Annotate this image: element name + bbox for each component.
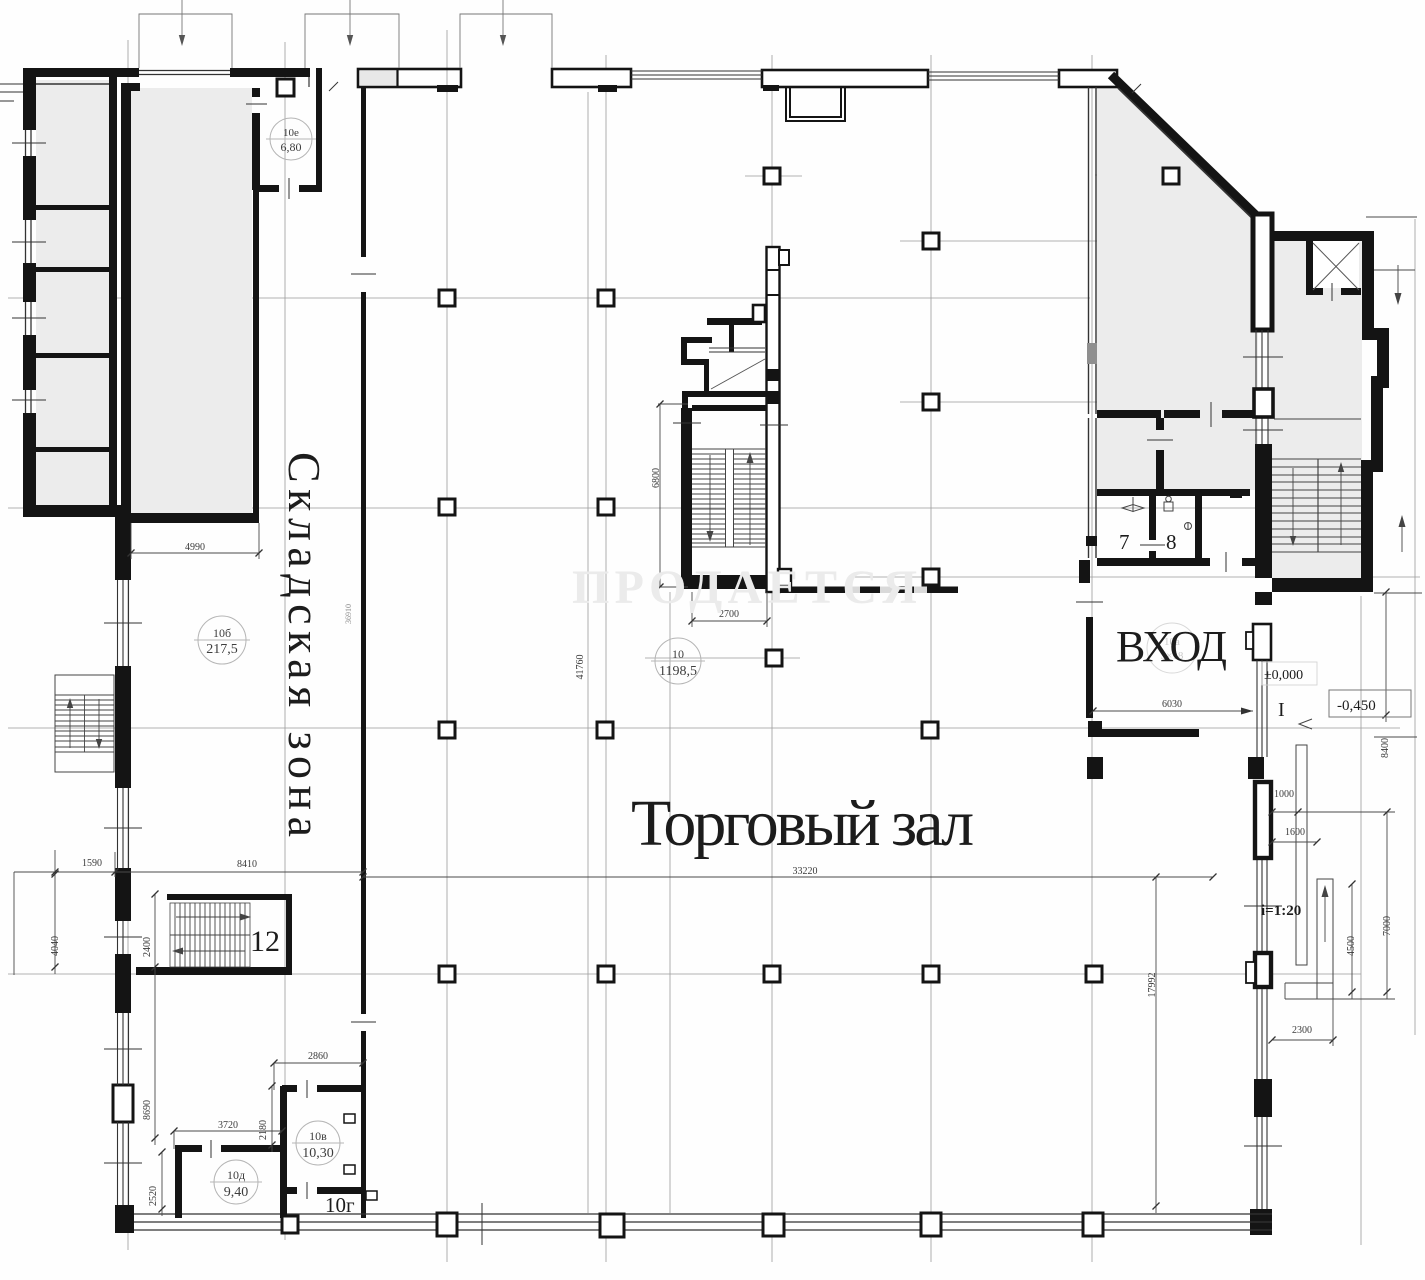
svg-text:8690: 8690	[142, 1100, 153, 1120]
svg-text:7000: 7000	[1382, 916, 1393, 936]
svg-text:1600: 1600	[1285, 827, 1305, 838]
svg-text:8: 8	[1166, 530, 1177, 554]
svg-text:1198,5: 1198,5	[659, 664, 697, 679]
svg-text:6,80: 6,80	[281, 140, 302, 154]
svg-text:6800: 6800	[651, 468, 662, 488]
svg-text:8410: 8410	[237, 859, 257, 870]
svg-text:10е: 10е	[283, 127, 299, 139]
svg-text:2860: 2860	[308, 1051, 328, 1062]
svg-text:4990: 4990	[185, 542, 205, 553]
svg-text:Торговый зал: Торговый зал	[631, 787, 974, 860]
svg-text:17992: 17992	[1147, 973, 1158, 998]
svg-text:I: I	[1278, 699, 1285, 721]
svg-text:10г: 10г	[325, 1193, 355, 1217]
svg-text:2300: 2300	[1292, 1025, 1312, 1036]
svg-text:ВХОД: ВХОД	[1116, 622, 1227, 671]
svg-text:1590: 1590	[82, 858, 102, 869]
svg-text:8400: 8400	[1380, 738, 1391, 758]
svg-text:6030: 6030	[1162, 699, 1182, 710]
svg-text:36910: 36910	[344, 604, 353, 624]
svg-text:10,30: 10,30	[302, 1146, 334, 1161]
svg-text:±0,000: ±0,000	[1264, 668, 1303, 683]
svg-text:217,5: 217,5	[206, 642, 238, 657]
svg-text:-0,450: -0,450	[1337, 698, 1376, 714]
svg-text:12: 12	[250, 925, 280, 958]
svg-text:1000: 1000	[1274, 789, 1294, 800]
svg-text:10в: 10в	[309, 1129, 327, 1143]
svg-text:ПРОДАЕТСЯ: ПРОДАЕТСЯ	[572, 561, 917, 614]
svg-text:10: 10	[672, 647, 684, 661]
svg-text:7: 7	[1119, 530, 1130, 554]
svg-text:2400: 2400	[142, 937, 153, 957]
svg-text:9,40: 9,40	[224, 1185, 249, 1200]
svg-text:3720: 3720	[218, 1120, 238, 1131]
svg-text:4500: 4500	[1346, 936, 1357, 956]
svg-text:41760: 41760	[575, 655, 586, 680]
svg-text:33220: 33220	[793, 866, 818, 877]
svg-text:2180: 2180	[258, 1120, 269, 1140]
svg-text:2520: 2520	[148, 1186, 159, 1206]
svg-text:10д: 10д	[227, 1168, 245, 1182]
svg-text:10б: 10б	[213, 626, 231, 640]
svg-text:4040: 4040	[50, 936, 61, 956]
svg-text:i=1:20: i=1:20	[1261, 903, 1301, 919]
